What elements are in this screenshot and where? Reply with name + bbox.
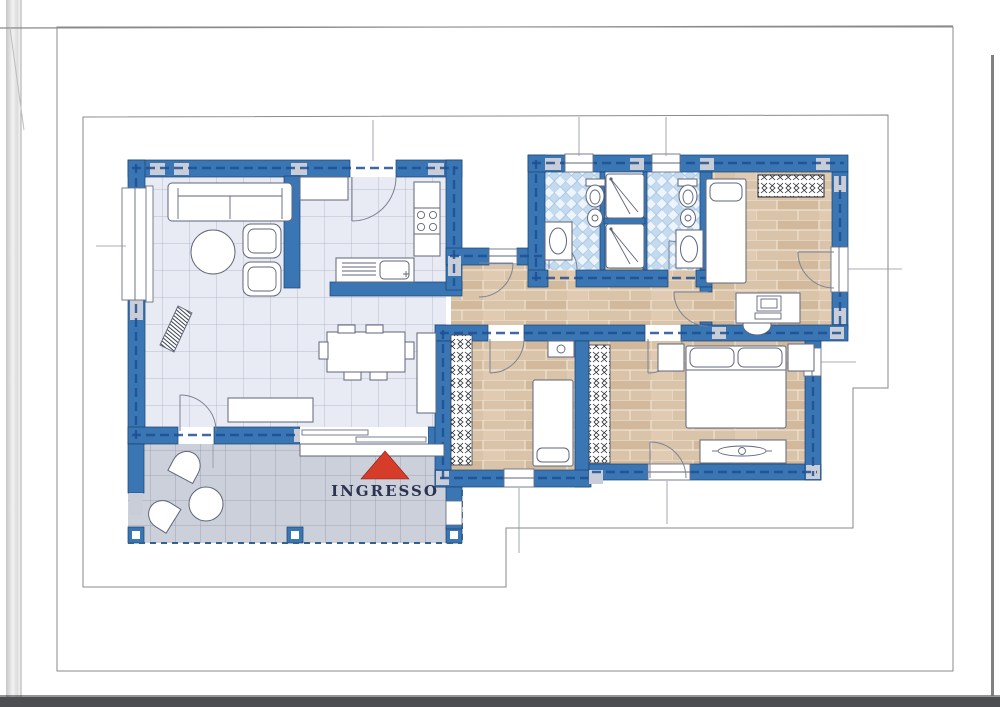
corridor-window	[489, 249, 517, 264]
bedroom1-window	[831, 247, 848, 292]
bidet	[681, 209, 696, 227]
bathroom1-window	[565, 154, 593, 172]
coffee-table	[191, 230, 235, 274]
patio-table	[189, 487, 223, 521]
sink-counter	[336, 258, 414, 282]
nightstand	[658, 344, 684, 371]
bidet	[588, 209, 603, 227]
shower	[606, 224, 644, 268]
toilet	[678, 179, 697, 207]
bay-window	[446, 501, 462, 525]
nightstand	[788, 344, 814, 371]
toilet	[586, 179, 605, 207]
wardrobe	[451, 335, 472, 465]
pillow	[690, 348, 734, 367]
shower	[606, 174, 644, 218]
armchair	[243, 262, 281, 296]
dining-table	[319, 325, 414, 380]
radiator	[758, 175, 824, 197]
floor-plan-drawing: INGRESSO	[0, 0, 1000, 707]
living-window	[122, 186, 153, 302]
wardrobe	[589, 345, 610, 463]
sofa	[168, 183, 292, 221]
right-scan-edge	[991, 55, 994, 696]
bathroom2-window	[652, 154, 680, 172]
washbasin	[545, 222, 572, 260]
kitchen-counter	[414, 234, 440, 256]
dresser	[700, 440, 786, 463]
sliding-door	[300, 427, 444, 456]
stove	[414, 208, 440, 234]
page-binding-shadow	[6, 0, 21, 707]
armchair	[243, 224, 281, 258]
single-bed	[706, 179, 746, 283]
bedroom2-window	[504, 469, 534, 487]
sideboard	[228, 398, 313, 422]
single-bed	[533, 380, 573, 466]
washbasin	[676, 230, 703, 268]
threshold-step	[300, 444, 444, 456]
entrance-label: INGRESSO	[331, 482, 439, 500]
tall-cabinet	[417, 333, 436, 413]
pillow	[738, 348, 782, 367]
scanned-floor-plan-page: INGRESSO	[0, 0, 1000, 707]
wall-radiator	[548, 341, 574, 357]
fridge	[414, 182, 440, 208]
kitchen-counter	[300, 177, 348, 200]
pillow	[537, 448, 569, 462]
bottom-scan-edge	[0, 697, 1000, 707]
pillow	[710, 183, 742, 201]
